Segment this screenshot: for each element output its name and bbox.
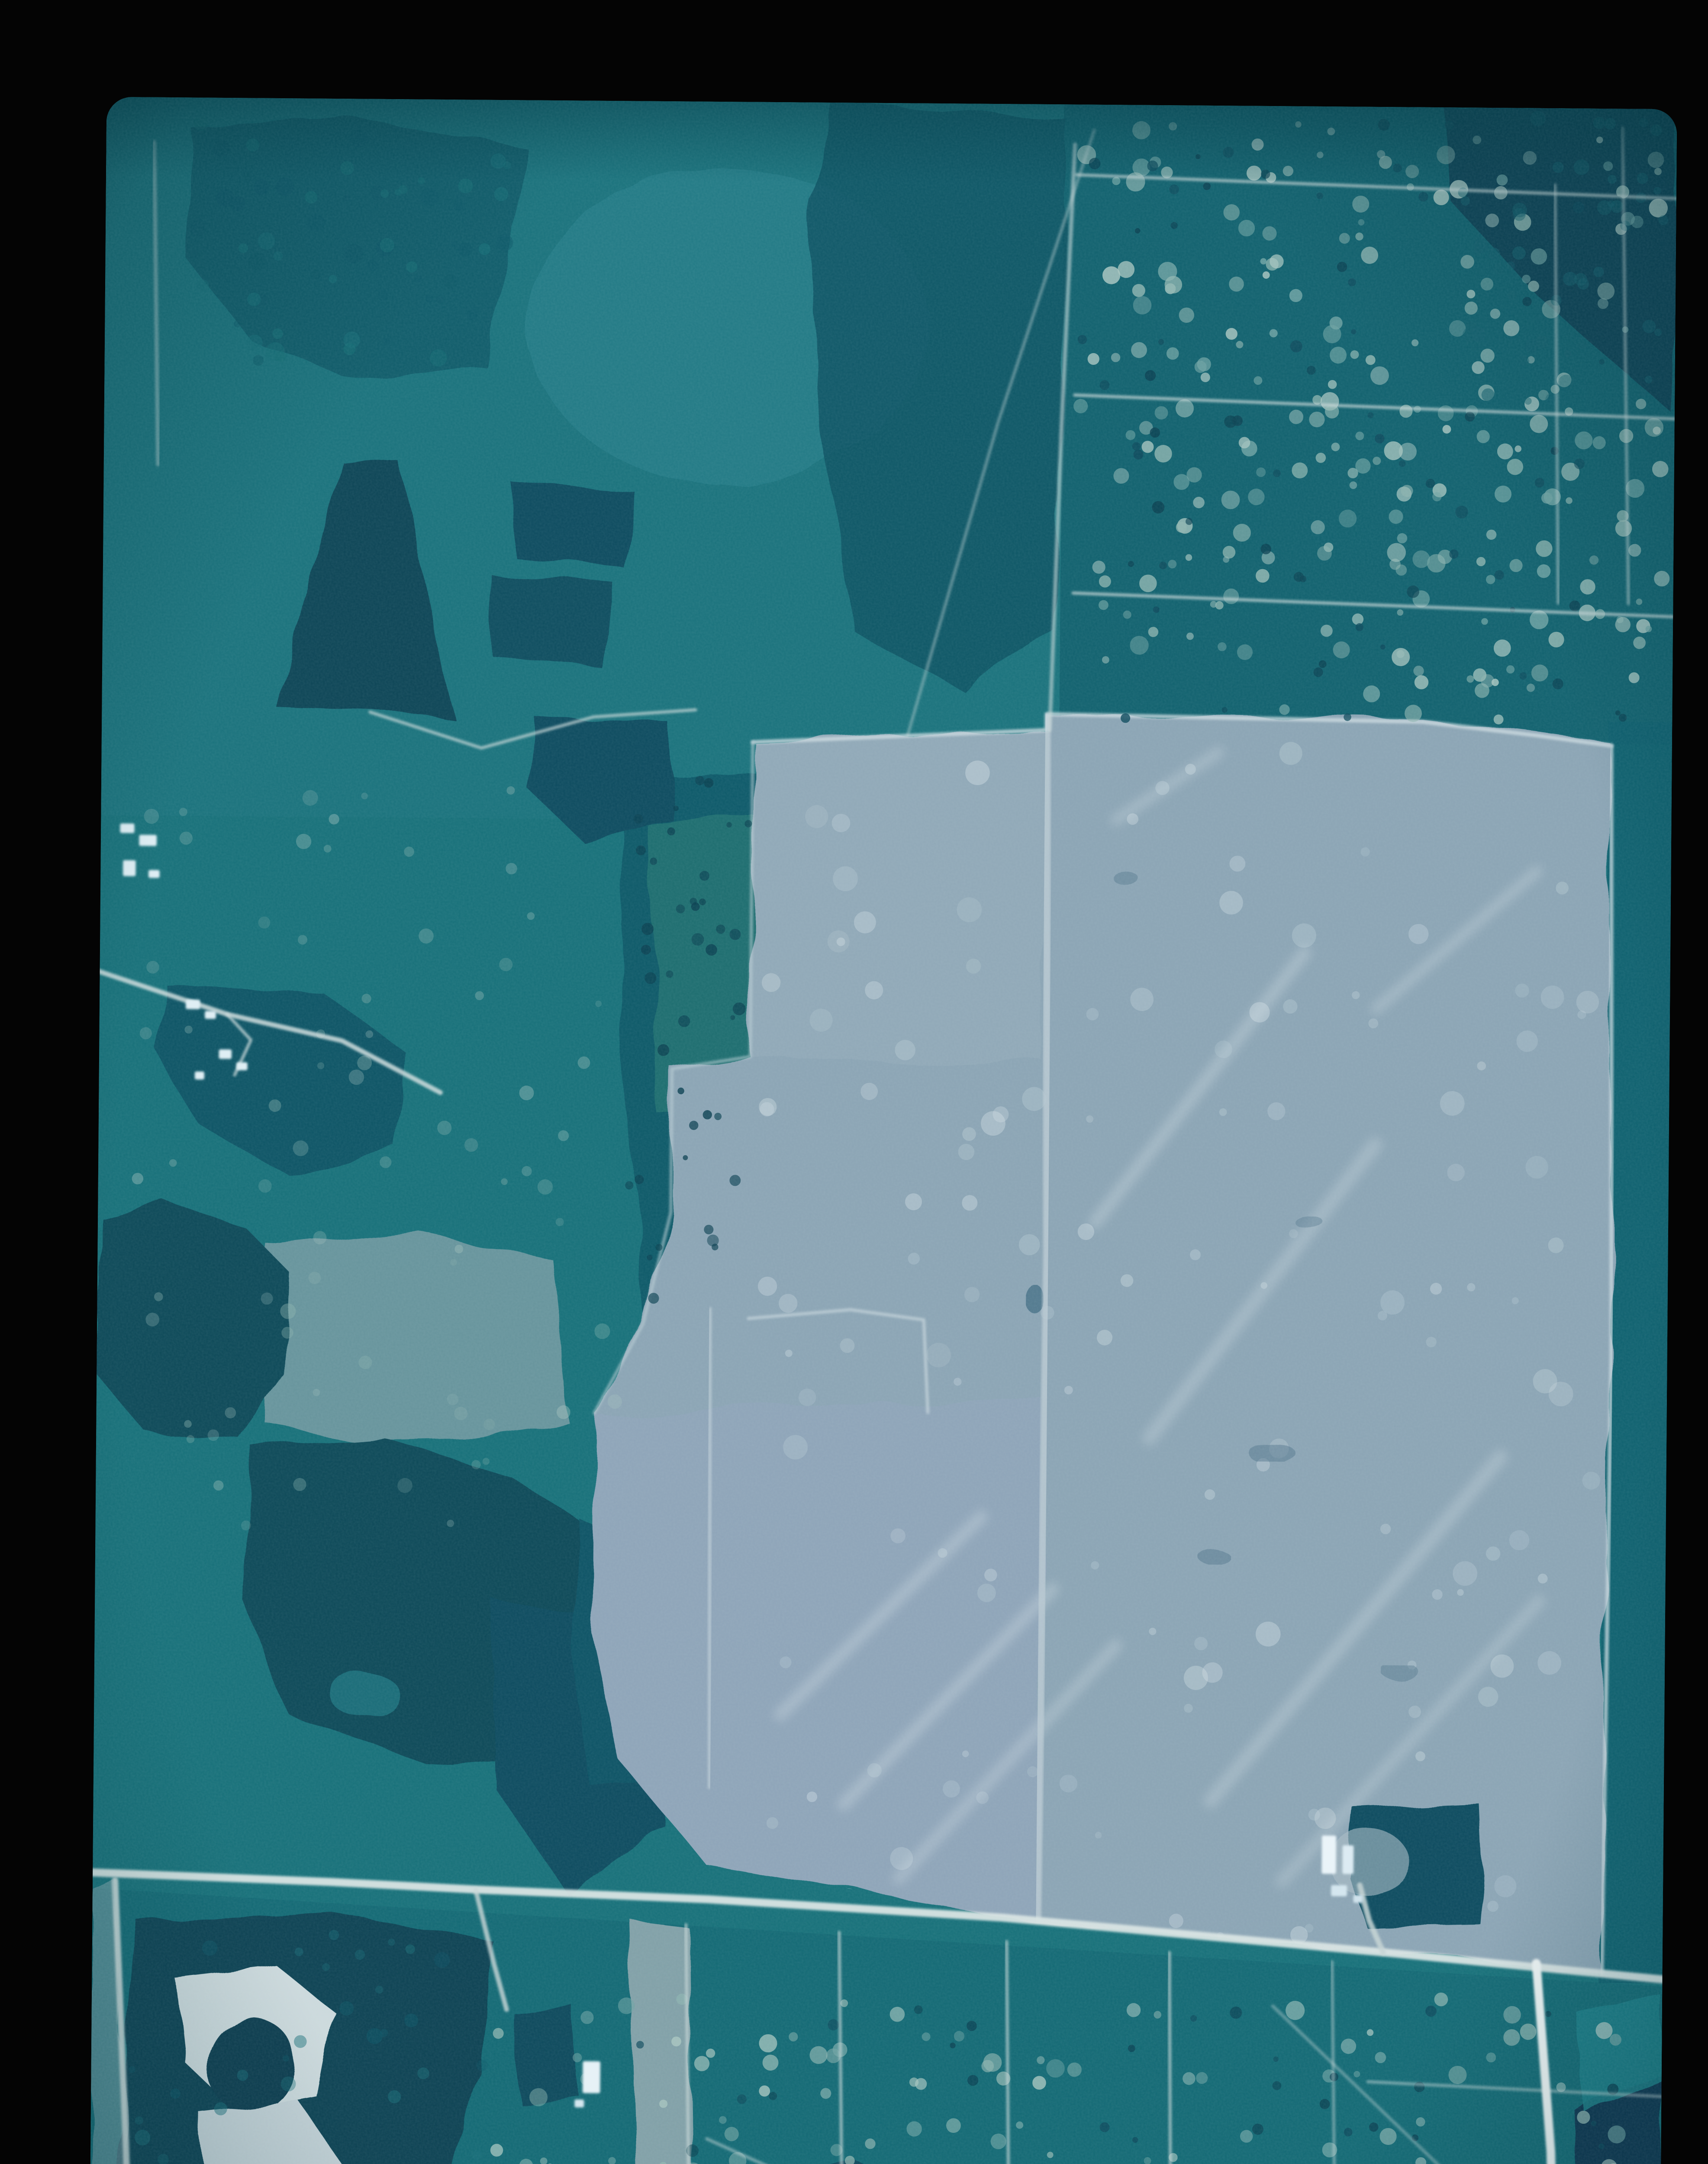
slide-mount	[0, 0, 1708, 2164]
terrain-scene	[88, 97, 1677, 2164]
aerial-photo-svg	[88, 97, 1677, 2164]
film-grain	[88, 97, 1677, 2164]
aerial-photo	[88, 97, 1677, 2164]
